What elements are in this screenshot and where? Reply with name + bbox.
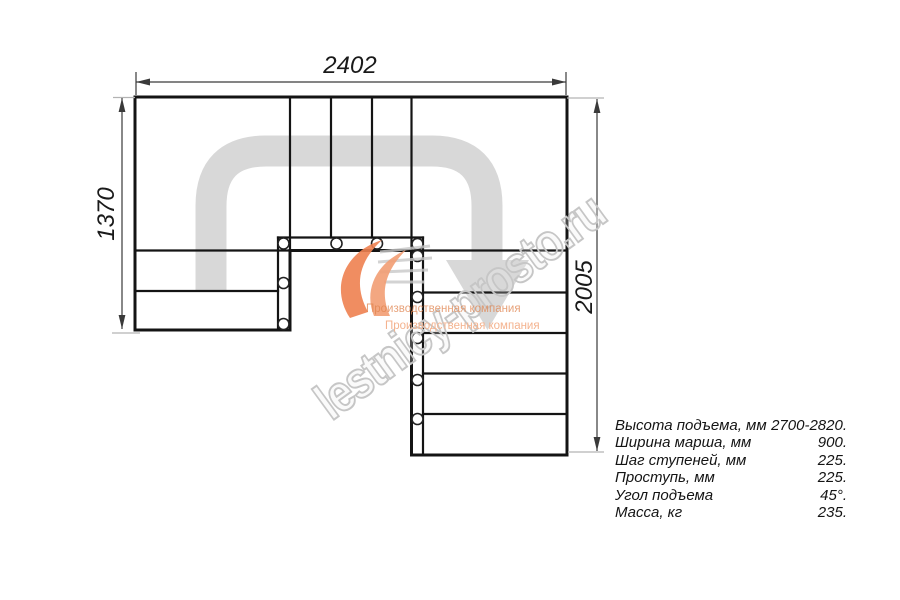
dimension-left-height-label: 1370 [93, 187, 121, 240]
spec-label: Масса, кг [615, 504, 682, 521]
spec-row: Угол подъема 45°. [615, 487, 847, 504]
spec-label: Шаг ступеней, мм [615, 452, 746, 469]
spec-row: Шаг ступеней, мм 225. [615, 452, 847, 469]
spec-row: Высота подъема, мм 2700-2820. [615, 417, 847, 434]
spec-row: Проступь, мм 225. [615, 469, 847, 486]
stair-plan-canvas: 2402 1370 2005 lestnicy-prosto.ru Произв… [0, 0, 900, 600]
dimension-width-label: 2402 [290, 52, 410, 80]
spec-value: 235. [818, 504, 847, 521]
spec-label: Проступь, мм [615, 469, 715, 486]
spec-label: Угол подъема [615, 487, 713, 504]
watermark-tagline-bottom: Производственная компания [385, 320, 540, 332]
spec-row: Масса, кг 235. [615, 504, 847, 521]
spec-row: Ширина марша, мм 900. [615, 434, 847, 451]
spec-value: 2700-2820. [771, 417, 847, 434]
spec-label: Высота подъема, мм [615, 417, 767, 434]
spec-value: 225. [818, 452, 847, 469]
spec-value: 900. [818, 434, 847, 451]
spec-label: Ширина марша, мм [615, 434, 751, 451]
dimension-right-height-label: 2005 [571, 260, 599, 313]
watermark-tagline-top: Производственная компания [366, 303, 521, 315]
spec-value: 225. [818, 469, 847, 486]
spec-value: 45°. [820, 487, 847, 504]
spec-table: Высота подъема, мм 2700-2820. Ширина мар… [615, 417, 847, 521]
